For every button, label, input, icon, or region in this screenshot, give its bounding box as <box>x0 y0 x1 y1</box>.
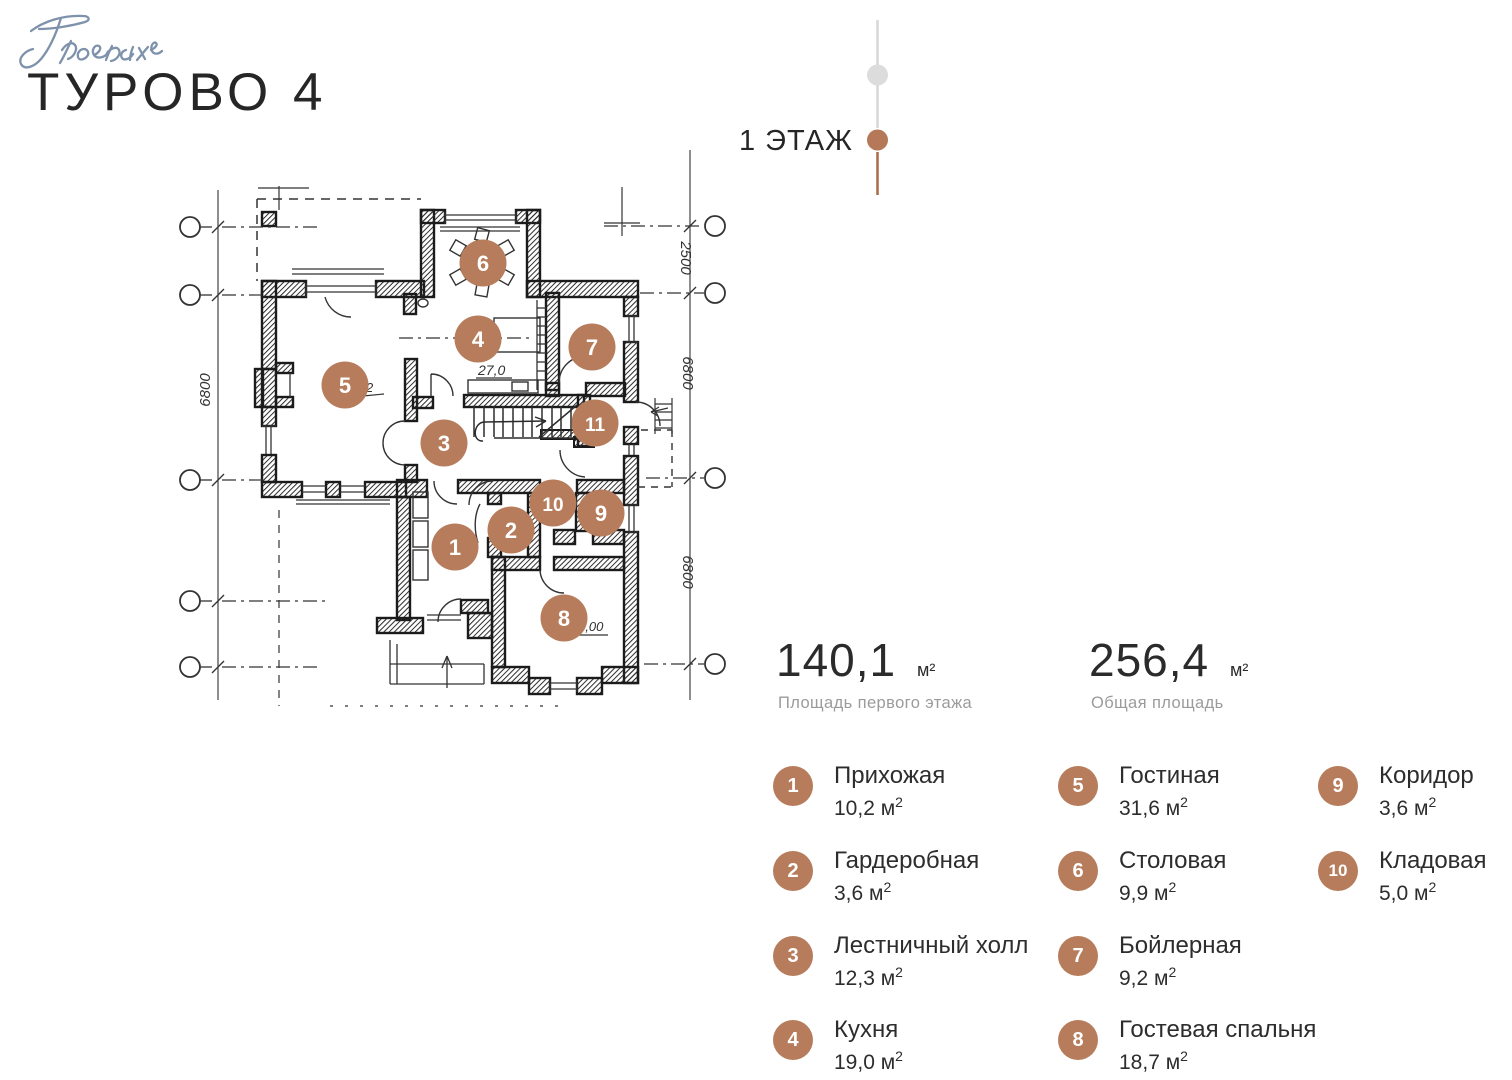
svg-text:5: 5 <box>339 373 351 398</box>
svg-text:10: 10 <box>542 495 563 516</box>
svg-text:1: 1 <box>449 535 461 560</box>
svg-text:3: 3 <box>438 431 450 456</box>
svg-text:7: 7 <box>586 335 598 360</box>
svg-text:27,0: 27,0 <box>477 362 505 378</box>
svg-text:2: 2 <box>505 518 517 543</box>
svg-text:4: 4 <box>472 327 485 352</box>
svg-text:2500: 2500 <box>677 240 694 275</box>
svg-text:11: 11 <box>585 415 606 436</box>
svg-text:6800: 6800 <box>679 555 696 589</box>
svg-text:6800: 6800 <box>679 356 696 390</box>
svg-text:9: 9 <box>595 501 607 526</box>
svg-text:6: 6 <box>477 251 489 276</box>
svg-text:8: 8 <box>558 606 570 631</box>
svg-text:6800: 6800 <box>197 373 214 407</box>
